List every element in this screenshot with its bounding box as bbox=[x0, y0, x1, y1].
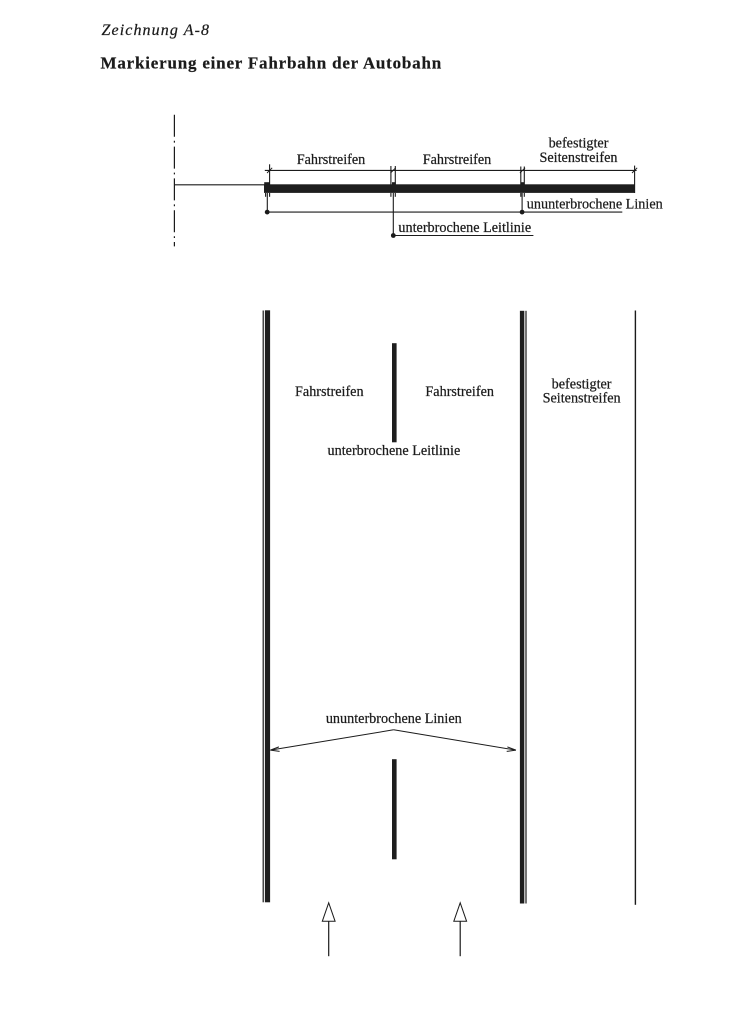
svg-text:ununterbrochene Linien: ununterbrochene Linien bbox=[527, 196, 663, 212]
svg-text:unterbrochene Leitlinie: unterbrochene Leitlinie bbox=[328, 443, 461, 459]
svg-text:Fahrstreifen: Fahrstreifen bbox=[295, 384, 364, 400]
svg-text:Zeichnung A-8: Zeichnung A-8 bbox=[102, 22, 211, 39]
svg-text:Fahrstreifen: Fahrstreifen bbox=[297, 152, 366, 168]
svg-text:Markierung einer Fahrbahn der: Markierung einer Fahrbahn der Autobahn bbox=[101, 54, 442, 73]
svg-text:Seitenstreifen: Seitenstreifen bbox=[543, 390, 621, 406]
svg-text:Seitenstreifen: Seitenstreifen bbox=[539, 150, 617, 166]
svg-text:unterbrochene Leitlinie: unterbrochene Leitlinie bbox=[398, 220, 531, 236]
svg-text:ununterbrochene Linien: ununterbrochene Linien bbox=[326, 711, 462, 727]
svg-text:Fahrstreifen: Fahrstreifen bbox=[425, 384, 494, 400]
svg-text:Fahrstreifen: Fahrstreifen bbox=[423, 152, 492, 168]
